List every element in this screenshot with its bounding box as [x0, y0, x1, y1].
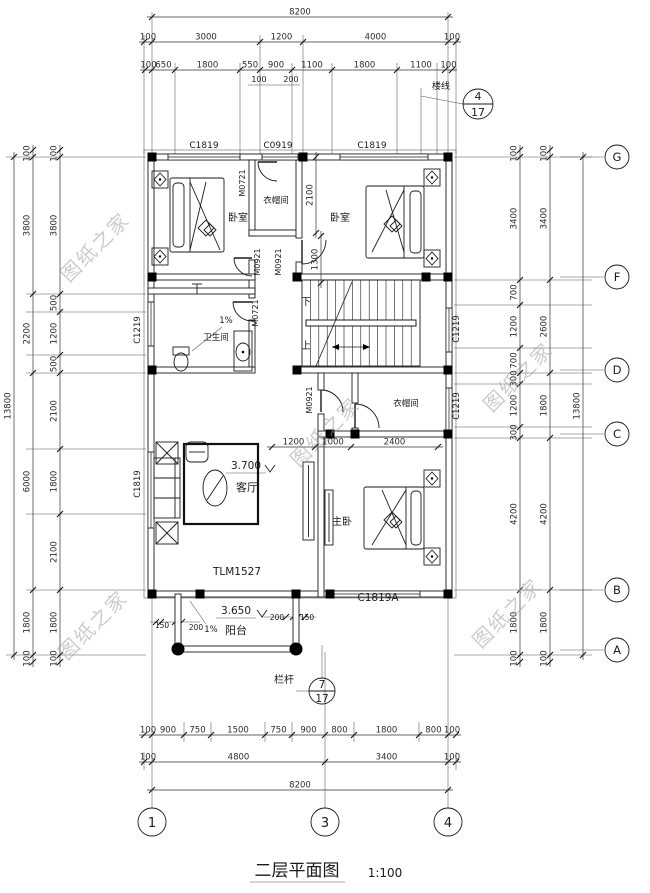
dim-label: 1200	[50, 323, 60, 345]
watermark-text: 图纸之家	[53, 585, 132, 664]
dim-top-sub-1: 200	[283, 75, 298, 84]
dim-label: 300	[510, 424, 520, 440]
dim-label: 6000	[23, 471, 33, 493]
title-scale: 1:100	[368, 866, 403, 880]
dim-label: 4800	[228, 753, 250, 763]
grid-bubble-bottom-label: 3	[321, 816, 329, 831]
dim-balcony-left-1: 200	[189, 623, 204, 632]
dim-label: 1100	[410, 61, 432, 71]
grid-bubble-right-label: B	[613, 583, 621, 597]
dim-label: 100	[444, 726, 460, 736]
label-balcony-door: TLM1527	[212, 566, 261, 578]
floor-plan-page: 8200100300012004000100100650180055090011…	[0, 0, 650, 893]
dim-label: 3800	[23, 215, 33, 237]
label-win-left-living: C1819	[133, 470, 143, 498]
dim-label: 750	[189, 726, 205, 736]
label-closet-top: 衣帽间	[263, 195, 289, 206]
dim-label: 800	[331, 726, 347, 736]
dim-label: 1800	[50, 471, 60, 493]
dim-label: 900	[268, 61, 284, 71]
dim-label: 100	[140, 726, 156, 736]
label-living: 客厅	[236, 480, 258, 494]
dim-label: 8200	[289, 781, 311, 791]
dim-label: 8200	[289, 8, 311, 18]
label-door-bath: M0721	[251, 299, 260, 326]
dim-label: 4200	[510, 503, 520, 525]
grid-bubble-right-label: F	[614, 270, 621, 284]
dim-label: 100	[440, 61, 456, 71]
label-bathroom: 卫生间	[203, 332, 229, 343]
dim-label: 100	[23, 145, 33, 161]
dim-label: 1800	[197, 61, 219, 71]
callout-top-den: 17	[471, 106, 485, 119]
dim-label: 13800	[573, 392, 583, 419]
callout-top-num: 4	[475, 90, 482, 103]
watermark-text: 图纸之家	[467, 573, 546, 652]
label-win-bottom-right: C1819A	[357, 592, 399, 604]
callout-top-note: 楼线	[432, 80, 450, 92]
dim-label: 100	[444, 753, 460, 763]
dim-label: 100	[50, 145, 60, 161]
dim-label: 2100	[306, 184, 316, 206]
dim-label: 550	[242, 61, 258, 71]
dim-label: 100	[140, 753, 156, 763]
dim-label: 900	[160, 726, 176, 736]
dim-label: 3400	[510, 208, 520, 230]
dim-label: 1800	[540, 612, 550, 634]
staircase	[302, 280, 420, 366]
label-door-master: M0921	[305, 386, 314, 413]
grid-bubble-right-label: A	[613, 643, 621, 657]
label-door-bed-left: M0921	[253, 248, 262, 275]
watermark-text: 图纸之家	[55, 207, 134, 286]
label-balcony: 阳台	[225, 623, 247, 637]
dim-label: 1800	[376, 726, 398, 736]
dim-balcony-right-0: 200	[270, 613, 285, 622]
label-railing: 栏杆	[274, 673, 294, 686]
label-bedroom-left: 卧室	[228, 211, 248, 224]
dim-label: 750	[270, 726, 286, 736]
label-win-top-left: C1819	[189, 141, 218, 151]
dim-label: 4200	[540, 503, 550, 525]
dim-label: 1800	[50, 612, 60, 634]
label-master: 主卧	[332, 515, 352, 528]
dim-label: 100	[140, 61, 156, 71]
dim-label: 3400	[540, 208, 550, 230]
label-win-top-mid: C0919	[263, 141, 292, 151]
dim-label: 650	[155, 61, 171, 71]
dim-label: 1300	[311, 249, 321, 271]
dim-label: 4000	[365, 33, 387, 43]
dim-label: 100	[23, 650, 33, 666]
dim-label: 100	[510, 145, 520, 161]
dim-label: 700	[510, 284, 520, 300]
dim-label: 100	[540, 145, 550, 161]
dim-label: 500	[50, 295, 60, 311]
floor-plan-drawing: 8200100300012004000100100650180055090011…	[0, 0, 650, 893]
dim-label: 1800	[540, 395, 550, 417]
dim-label: 13800	[4, 392, 14, 419]
label-stairs-down: 下	[301, 297, 311, 308]
grid-bubble-bottom-label: 1	[148, 816, 156, 831]
dim-label: 3000	[195, 33, 217, 43]
label-win-right-stair: C1219	[452, 315, 462, 343]
dim-label: 800	[425, 726, 441, 736]
dim-label: 1800	[23, 612, 33, 634]
label-door-closet-top: M0721	[238, 169, 247, 196]
dim-label: 100	[510, 650, 520, 666]
callout-bottom-num: 7	[319, 679, 326, 691]
label-slope-balcony: 1%	[204, 625, 218, 635]
grid-bubble-right-label: C	[613, 427, 621, 441]
dim-label: 100	[444, 33, 460, 43]
dim-label: 1200	[510, 316, 520, 338]
label-door-bed-right: M0921	[274, 248, 283, 275]
dim-balcony-left-0: 150	[155, 621, 170, 630]
label-level-balcony: 3.650	[221, 605, 251, 617]
dim-label: 1200	[271, 33, 293, 43]
label-level-living: 3.700	[231, 460, 261, 472]
dim-label: 1800	[354, 61, 376, 71]
dim-label: 100	[140, 33, 156, 43]
label-slope-bath: 1%	[219, 316, 233, 326]
dim-label: 2400	[384, 438, 406, 448]
dim-label: 1500	[227, 726, 249, 736]
label-win-top-right: C1819	[357, 141, 386, 151]
dim-label: 2200	[23, 323, 33, 345]
dim-label: 100	[540, 650, 550, 666]
grid-bubble-right-label: D	[613, 363, 622, 377]
dim-label: 3400	[376, 753, 398, 763]
dim-top-sub-0: 100	[251, 75, 266, 84]
dim-label: 2600	[540, 316, 550, 338]
dim-label: 2100	[50, 541, 60, 563]
label-win-left-bath: C1219	[133, 316, 143, 344]
dim-label: 2100	[50, 400, 60, 422]
title-text: 二层平面图	[255, 861, 340, 881]
label-bedroom-right: 卧室	[330, 211, 350, 224]
label-closet-mid: 衣帽间	[393, 398, 419, 409]
grid-bubble-right-label: G	[613, 150, 622, 164]
dim-label: 1100	[301, 61, 323, 71]
dim-label: 900	[300, 726, 316, 736]
dim-label: 500	[50, 356, 60, 372]
label-win-right-closet: C1219	[452, 392, 462, 420]
dim-label: 3800	[50, 215, 60, 237]
dim-balcony-right-1: 150	[300, 613, 315, 622]
grid-bubble-bottom-label: 4	[444, 816, 452, 831]
label-stairs-up: 上	[301, 340, 311, 352]
